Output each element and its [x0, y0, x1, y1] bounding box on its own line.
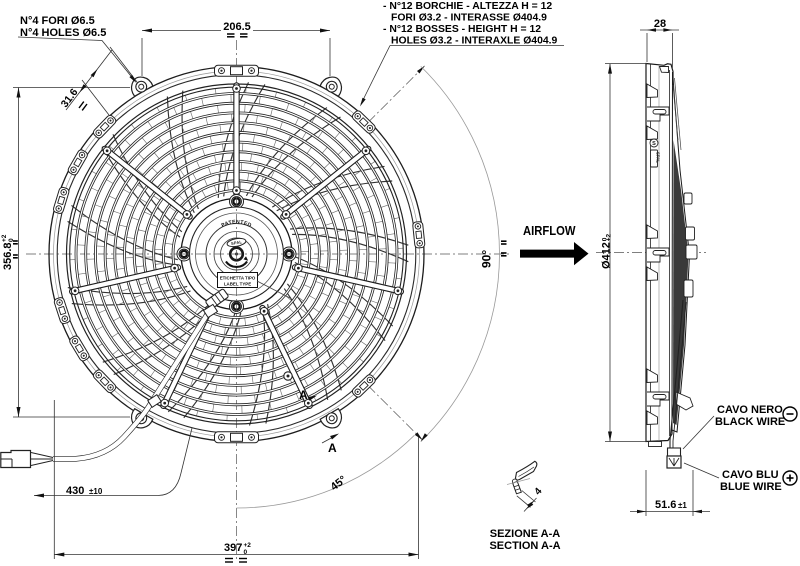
svg-text:430: 430 — [66, 485, 84, 497]
svg-text:N°4 HOLES Ø6.5: N°4 HOLES Ø6.5 — [20, 27, 106, 39]
svg-text:0: 0 — [602, 237, 609, 241]
svg-text:+2: +2 — [244, 542, 252, 549]
svg-text:BLACK WIRE: BLACK WIRE — [715, 416, 785, 428]
svg-text:SPAL: SPAL — [656, 152, 661, 163]
svg-text:±10: ±10 — [89, 487, 103, 496]
svg-text:LABEL TYPE: LABEL TYPE — [224, 282, 251, 287]
svg-text:CAVO NERO: CAVO NERO — [717, 404, 783, 416]
svg-text:+2: +2 — [1, 234, 8, 242]
svg-text:BLUE WIRE: BLUE WIRE — [720, 481, 782, 493]
svg-text:206.5: 206.5 — [223, 21, 251, 33]
svg-text:397: 397 — [224, 542, 242, 554]
svg-text:31.6: 31.6 — [59, 86, 81, 110]
svg-text:4: 4 — [533, 486, 545, 498]
svg-text:CAVO BLU: CAVO BLU — [722, 469, 779, 481]
svg-text:HOLES Ø3.2 - INTERAXLE Ø404.9: HOLES Ø3.2 - INTERAXLE Ø404.9 — [391, 35, 558, 46]
svg-text:- N°12 BORCHIE - ALTEZZA H = 1: - N°12 BORCHIE - ALTEZZA H = 12 — [383, 1, 552, 12]
svg-text:S: S — [652, 141, 656, 147]
svg-text:SEZIONE A-A: SEZIONE A-A — [490, 528, 561, 540]
svg-text:AIRFLOW: AIRFLOW — [523, 224, 576, 238]
svg-text:28: 28 — [654, 18, 666, 30]
svg-text:N°4 FORI Ø6.5: N°4 FORI Ø6.5 — [20, 15, 95, 27]
svg-text:45°: 45° — [328, 474, 349, 494]
svg-text:FORI Ø3.2 - INTERASSE Ø404.9: FORI Ø3.2 - INTERASSE Ø404.9 — [391, 12, 547, 23]
svg-text:SECTION A-A: SECTION A-A — [489, 540, 560, 552]
svg-text:Ø412: Ø412 — [601, 242, 613, 269]
svg-text:90°: 90° — [480, 250, 494, 268]
svg-text:ETICHETTA TIPO: ETICHETTA TIPO — [220, 275, 256, 280]
svg-text:±1: ±1 — [678, 501, 687, 510]
svg-text:51.6: 51.6 — [655, 499, 676, 511]
svg-text:A: A — [328, 441, 337, 455]
svg-text:0: 0 — [244, 549, 248, 556]
svg-text:356.8: 356.8 — [2, 242, 14, 270]
svg-text:- N°12 BOSSES - HEIGHT H = 12: - N°12 BOSSES - HEIGHT H = 12 — [383, 24, 541, 35]
